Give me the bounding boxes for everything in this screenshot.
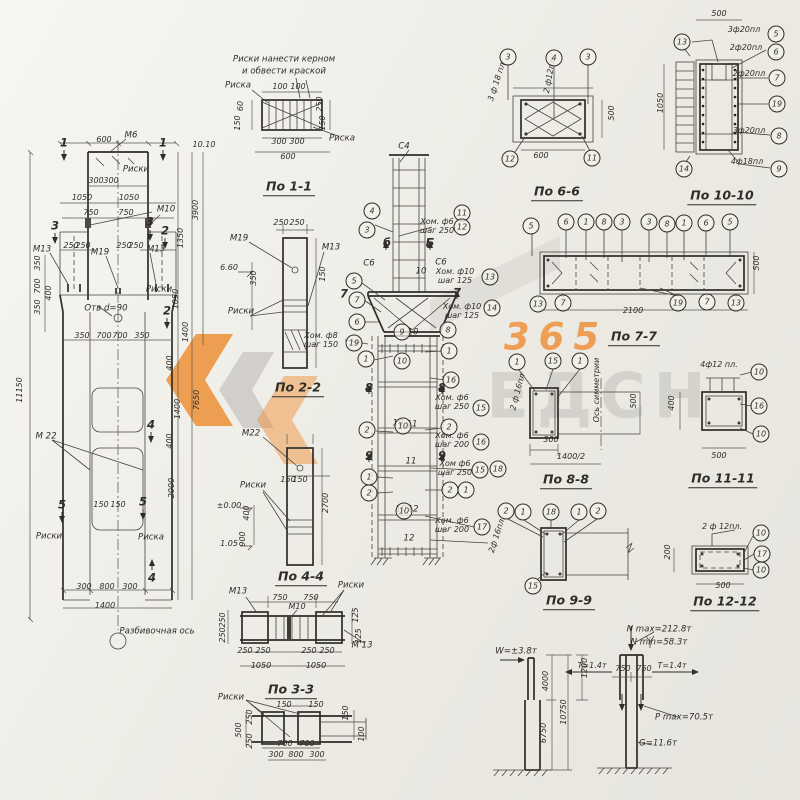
main-elevation-label: 750 bbox=[118, 209, 133, 217]
callout-2: 2 bbox=[590, 503, 607, 520]
callout-8: 8 bbox=[771, 128, 788, 145]
sec-12-12-label: 200 bbox=[664, 544, 672, 559]
sec-3-3-label: 250 bbox=[301, 647, 316, 655]
sec-4-4-label: 150 bbox=[292, 476, 307, 484]
sec-10-10-label: 2ф20пл bbox=[730, 44, 762, 52]
rebar-cage-label: шаг 250 bbox=[438, 469, 472, 477]
rebar-cage-label: шаг 250 bbox=[435, 403, 469, 411]
callout-10: 10 bbox=[751, 364, 768, 381]
sec-12-12-label: 500 bbox=[715, 582, 730, 590]
sec-5-5-label: 100 bbox=[358, 726, 366, 741]
main-elevation-label: 1050 bbox=[72, 194, 92, 202]
sec-2-2-label: 6.60 bbox=[220, 264, 238, 272]
sec-1-1-label: Риски нанести керном bbox=[233, 56, 335, 65]
main-elevation-label: М13 bbox=[147, 246, 165, 255]
sec-5-5-label: 300 bbox=[309, 751, 324, 759]
callout-16: 16 bbox=[443, 372, 460, 389]
sec-4-4-label: 900 bbox=[239, 531, 247, 546]
labels-layer: 600М61110.10Риски30030010501050750750М10… bbox=[0, 0, 800, 800]
main-elevation-label: 700 bbox=[34, 278, 42, 293]
rebar-cage-label: 8 bbox=[365, 382, 373, 394]
main-elevation-label: 1050 bbox=[172, 289, 180, 309]
sec-1-1-label: 250 bbox=[316, 96, 324, 111]
main-elevation-label: 3 bbox=[146, 216, 154, 228]
main-elevation-label: 1350 bbox=[177, 228, 185, 248]
callout-6: 6 bbox=[698, 215, 715, 232]
main-elevation-label: 350 bbox=[74, 332, 89, 340]
load-diagrams-label: W=±3.8т bbox=[495, 648, 537, 657]
sec-2-2-label: 7 bbox=[340, 288, 348, 300]
sec-12-12-title: По 12-12 bbox=[690, 595, 759, 611]
sec-2-2-label: 350 bbox=[250, 270, 258, 285]
main-elevation-label: Риски bbox=[36, 533, 62, 542]
sec-4-4-label: 2700 bbox=[322, 493, 330, 513]
sec-2-2-label: М13 bbox=[322, 244, 340, 253]
callout-4: 4 bbox=[546, 50, 563, 67]
callout-13: 13 bbox=[674, 34, 691, 51]
rebar-cage-label: б bbox=[383, 237, 391, 249]
sec-10-10-label: 4ф18пл bbox=[731, 158, 763, 166]
sec-3-3-label: 125 bbox=[352, 607, 360, 622]
main-elevation-label: М 22 bbox=[35, 433, 56, 442]
callout-6: 6 bbox=[349, 314, 366, 331]
main-elevation-label: 1400 bbox=[95, 602, 115, 610]
load-diagrams-label: P max=70.5т bbox=[655, 714, 713, 723]
main-elevation-label: 11150 bbox=[16, 377, 24, 402]
callout-10: 10 bbox=[396, 503, 413, 520]
callout-6: 6 bbox=[768, 44, 785, 61]
callout-10: 10 bbox=[395, 418, 412, 435]
main-elevation-label: 2000 bbox=[168, 478, 176, 498]
sec-11-11-label: 400 bbox=[668, 395, 676, 410]
sec-5-5-label: 250 bbox=[246, 733, 254, 748]
main-elevation-label: 1400 bbox=[182, 322, 190, 342]
callout-19: 19 bbox=[670, 295, 687, 312]
main-elevation-label: 3900 bbox=[192, 200, 200, 220]
callout-17: 17 bbox=[474, 519, 491, 536]
sec-10-10-title: По 10-10 bbox=[687, 189, 756, 205]
callout-3: 3 bbox=[641, 214, 658, 231]
main-elevation-label: 4 bbox=[148, 572, 156, 584]
callout-7: 7 bbox=[349, 292, 366, 309]
sec-4-4-label: ±0.00 bbox=[217, 502, 242, 510]
sec-10-10-label: 500 bbox=[711, 10, 726, 18]
sec-7-7-title: По 7-7 bbox=[608, 330, 660, 346]
main-elevation-label: 150 bbox=[110, 501, 125, 509]
sec-2-2-label: 250 bbox=[273, 219, 288, 227]
callout-2: 2 bbox=[361, 485, 378, 502]
main-elevation-label: М6 bbox=[125, 132, 138, 141]
sec-1-1-label: 100 bbox=[290, 83, 305, 91]
rebar-cage-label: шаг 125 bbox=[445, 312, 479, 320]
callout-18: 18 bbox=[490, 461, 507, 478]
drawing-sheet: 365 ЕДСН bbox=[0, 0, 800, 800]
callout-4: 4 bbox=[364, 203, 381, 220]
main-elevation-label: 5 bbox=[58, 499, 66, 511]
sec-5-5-label: 800 bbox=[288, 751, 303, 759]
main-elevation-label: М13 bbox=[33, 246, 51, 255]
sec-8-8-title: По 8-8 bbox=[540, 473, 592, 489]
sec-1-1-label: 600 bbox=[280, 153, 295, 161]
main-elevation-label: Риски bbox=[146, 286, 172, 295]
main-elevation-label: 350 bbox=[34, 299, 42, 314]
callout-12: 12 bbox=[454, 219, 471, 236]
sec-11-11-label: 4ф12 пл. bbox=[700, 361, 738, 369]
sec-3-3-title: По 3-3 bbox=[265, 683, 317, 699]
callout-3: 3 bbox=[359, 222, 376, 239]
rebar-cage-label: Хом. ф10 bbox=[436, 268, 475, 276]
sec-2-2-label: Риски bbox=[228, 308, 254, 317]
main-elevation-label: 300 bbox=[122, 583, 137, 591]
callout-1: 1 bbox=[509, 354, 526, 371]
callout-8: 8 bbox=[596, 214, 613, 231]
sec-5-5-label: 500 bbox=[235, 722, 243, 737]
callout-11: 11 bbox=[584, 150, 601, 167]
sec-1-1-label: 150 bbox=[234, 115, 242, 130]
sec-2-2-label: М19 bbox=[230, 235, 248, 244]
callout-15: 15 bbox=[472, 462, 489, 479]
rebar-cage-label: шаг 150 bbox=[304, 341, 338, 349]
main-elevation-label: 700 bbox=[112, 332, 127, 340]
callout-16: 16 bbox=[473, 434, 490, 451]
sec-1-1-title: По 1-1 bbox=[263, 180, 315, 196]
sec-3-3-label: 1050 bbox=[251, 662, 271, 670]
sec-1-1-label: 300 bbox=[289, 138, 304, 146]
sec-9-9-title: По 9-9 bbox=[543, 594, 595, 610]
sec-6-6-label: 3 ф 18 пл bbox=[487, 62, 507, 103]
callout-17: 17 bbox=[754, 546, 771, 563]
sec-3-3-label: 750 bbox=[272, 594, 287, 602]
sec-5-5-label: 300 bbox=[268, 751, 283, 759]
sec-3-3-label: 250 bbox=[237, 647, 252, 655]
callout-5: 5 bbox=[768, 26, 785, 43]
sec-2-2-label: 150 bbox=[319, 266, 327, 281]
sec-2-2-title: По 2-2 bbox=[272, 381, 324, 397]
callout-1: 1 bbox=[515, 504, 532, 521]
sec-3-3-label: 1050 bbox=[306, 662, 326, 670]
rebar-cage-label: шаг 200 bbox=[435, 526, 469, 534]
callout-7: 7 bbox=[555, 295, 572, 312]
sec-10-10-label: 2ф20пл bbox=[733, 70, 765, 78]
rebar-cage-label: шаг 125 bbox=[438, 277, 472, 285]
sec-11-11-label: 500 bbox=[711, 452, 726, 460]
sec-3-3-label: 250 bbox=[219, 627, 227, 642]
main-elevation-label: М19 bbox=[91, 249, 109, 258]
main-elevation-label: 300 bbox=[103, 177, 118, 185]
sec-6-6-label: 600 bbox=[533, 152, 548, 160]
callout-14: 14 bbox=[676, 161, 693, 178]
load-diagrams-label: 750 bbox=[615, 665, 630, 673]
rebar-cage-label: Хом. ф6 bbox=[420, 218, 453, 226]
main-elevation-label: 1400 bbox=[174, 399, 182, 419]
sec-8-8-label: 1400/2 bbox=[557, 453, 585, 461]
callout-1: 1 bbox=[441, 343, 458, 360]
rebar-cage-label: Хом. ф6 bbox=[435, 394, 468, 402]
rebar-cage-label: 2ф 16пл bbox=[488, 518, 506, 554]
main-elevation-label: 1 bbox=[60, 137, 68, 149]
sec-10-10-label: 1050 bbox=[657, 93, 665, 113]
sec-5-5-label: 700 bbox=[299, 740, 314, 748]
sec-6-6-title: По 6-6 bbox=[531, 185, 583, 201]
callout-1: 1 bbox=[572, 353, 589, 370]
callout-7: 7 bbox=[769, 70, 786, 87]
rebar-cage-label: 7 bbox=[453, 287, 461, 299]
sec-8-8-label: 2 ф 16пл bbox=[509, 373, 526, 411]
rebar-cage-label: Хом ф6 bbox=[440, 460, 471, 468]
load-diagrams-label: 4000 bbox=[542, 671, 550, 691]
callout-10: 10 bbox=[753, 562, 770, 579]
load-diagrams-label: 10750 bbox=[560, 699, 568, 724]
callout-8: 8 bbox=[659, 216, 676, 233]
sec-1-1-label: 150 bbox=[319, 115, 327, 130]
rebar-cage-label: С4 bbox=[398, 143, 409, 152]
main-elevation-label: 10.10 bbox=[193, 141, 216, 149]
main-elevation-label: 400 bbox=[166, 433, 174, 448]
load-diagrams-label: N min=58.3т bbox=[631, 639, 688, 648]
sec-4-4-title: По 4-4 bbox=[275, 570, 327, 586]
main-elevation-label: Отв d=90 bbox=[84, 305, 127, 314]
callout-8: 8 bbox=[440, 322, 457, 339]
callout-3: 3 bbox=[500, 49, 517, 66]
sec-8-8-label: 300 bbox=[543, 436, 558, 444]
main-elevation-label: 7650 bbox=[193, 390, 201, 410]
sec-5-5-label: 150 bbox=[276, 701, 291, 709]
callout-1: 1 bbox=[458, 482, 475, 499]
sec-4-4-label: М22 bbox=[242, 430, 260, 439]
rebar-cage-label: Б bbox=[426, 237, 435, 249]
main-elevation-label: 1 bbox=[159, 137, 167, 149]
rebar-cage-label: 12 bbox=[404, 535, 415, 544]
sec-3-3-label: Риски bbox=[338, 582, 364, 591]
load-diagrams-label: 750 bbox=[636, 665, 651, 673]
rebar-cage-label: 9 bbox=[365, 450, 373, 462]
rebar-cage-label: С6 bbox=[435, 259, 446, 268]
sec-10-10-label: 3ф20пл bbox=[728, 26, 760, 34]
sec-3-3-label: М13 bbox=[229, 588, 247, 597]
callout-19: 19 bbox=[346, 335, 363, 352]
sec-5-5-label: 150 bbox=[308, 701, 323, 709]
callout-1: 1 bbox=[361, 469, 378, 486]
rebar-cage-label: Хом. ф8 bbox=[304, 332, 337, 340]
sec-8-8-label: Ось симметрии bbox=[593, 358, 601, 423]
sec-4-4-label: Риски bbox=[240, 482, 266, 491]
callout-1: 1 bbox=[571, 504, 588, 521]
sec-4-4-label: 400 bbox=[243, 505, 251, 520]
main-elevation-label: 300 bbox=[76, 583, 91, 591]
rebar-cage-label: 10 bbox=[416, 268, 427, 277]
rebar-cage-label: Хом. ф6 bbox=[435, 517, 468, 525]
callout-5: 5 bbox=[722, 214, 739, 231]
sec-1-1-label: 100 bbox=[272, 83, 287, 91]
sec-12-12-label: 2 ф 12пл. bbox=[702, 523, 742, 531]
main-elevation-label: 400 bbox=[166, 355, 174, 370]
callout-10: 10 bbox=[753, 525, 770, 542]
sec-10-10-label: 3ф20пл bbox=[733, 127, 765, 135]
callout-2: 2 bbox=[441, 419, 458, 436]
load-diagrams-label: 6750 bbox=[540, 723, 548, 743]
main-elevation-label: Риски bbox=[123, 166, 149, 175]
main-elevation-label: 2 bbox=[163, 305, 171, 317]
sec-5-5-label: Риски bbox=[218, 694, 244, 703]
callout-16: 16 bbox=[751, 398, 768, 415]
main-elevation-label: 3 bbox=[51, 220, 59, 232]
load-diagrams-label: G=11.6т bbox=[639, 740, 677, 749]
main-elevation-label: М10 bbox=[157, 206, 175, 215]
sec-11-11-title: По 11-11 bbox=[688, 472, 757, 488]
main-elevation-label: 300 bbox=[88, 177, 103, 185]
callout-10: 10 bbox=[394, 353, 411, 370]
callout-6: 6 bbox=[558, 214, 575, 231]
load-diagrams-label: N max=212.8т bbox=[627, 626, 692, 635]
callout-1: 1 bbox=[358, 351, 375, 368]
sec-6-6-label: 500 bbox=[608, 105, 616, 120]
callout-13: 13 bbox=[530, 296, 547, 313]
sec-1-1-label: 300 bbox=[271, 138, 286, 146]
callout-1: 1 bbox=[676, 215, 693, 232]
callout-3: 3 bbox=[614, 214, 631, 231]
callout-14: 14 bbox=[484, 300, 501, 317]
sec-7-7-label: 500 bbox=[753, 255, 761, 270]
rebar-cage-label: 11 bbox=[406, 458, 417, 467]
callout-12: 12 bbox=[502, 151, 519, 168]
main-elevation-label: 350 bbox=[34, 255, 42, 270]
main-elevation-label: 350 bbox=[134, 332, 149, 340]
main-elevation-label: 700 bbox=[96, 332, 111, 340]
sec-3-3-label: 750 bbox=[303, 594, 318, 602]
sec-1-1-label: Риска bbox=[225, 82, 251, 91]
callout-1: 1 bbox=[578, 214, 595, 231]
callout-9: 9 bbox=[771, 161, 788, 178]
rebar-cage-label: С6 bbox=[363, 260, 374, 269]
main-elevation-label: Разбивочная ось bbox=[119, 628, 194, 637]
callout-7: 7 bbox=[699, 294, 716, 311]
callout-5: 5 bbox=[346, 273, 363, 290]
callout-10: 10 bbox=[753, 426, 770, 443]
main-elevation-label: 150 bbox=[93, 501, 108, 509]
callout-5: 5 bbox=[523, 218, 540, 235]
rebar-cage-label: шаг 250 bbox=[420, 227, 454, 235]
main-elevation-label: 250 bbox=[128, 242, 143, 250]
sec-2-2-label: 250 bbox=[289, 219, 304, 227]
sec-5-5-label: 700 bbox=[277, 740, 292, 748]
main-elevation-label: 400 bbox=[45, 285, 53, 300]
main-elevation-label: Риска bbox=[138, 534, 164, 543]
callout-19: 19 bbox=[769, 96, 786, 113]
sec-8-8-label: 500 bbox=[630, 393, 638, 408]
load-diagrams-label: Т=1.4т bbox=[578, 662, 607, 670]
main-elevation-label: 1050 bbox=[119, 194, 139, 202]
sec-5-5-label: 150 bbox=[342, 705, 350, 720]
sec-3-3-label: 250 bbox=[219, 612, 227, 627]
callout-13: 13 bbox=[728, 295, 745, 312]
callout-3: 3 bbox=[580, 49, 597, 66]
main-elevation-label: 800 bbox=[99, 583, 114, 591]
sec-4-4-label: 1.05 bbox=[220, 540, 238, 548]
callout-15: 15 bbox=[473, 400, 490, 417]
callout-15: 15 bbox=[525, 578, 542, 595]
sec-3-3-label: 250 bbox=[319, 647, 334, 655]
main-elevation-label: 600 bbox=[96, 136, 111, 144]
sec-1-1-label: и обвести краской bbox=[242, 68, 326, 77]
rebar-cage-label: Хом. ф10 bbox=[443, 303, 482, 311]
sec-3-3-label: М10 bbox=[288, 603, 305, 611]
callout-9: 9 bbox=[394, 324, 411, 341]
main-elevation-label: 2 bbox=[161, 225, 169, 237]
callout-15: 15 bbox=[545, 353, 562, 370]
sec-3-3-label: 250 bbox=[255, 647, 270, 655]
sec-1-1-label: 60 bbox=[237, 101, 245, 111]
callout-2: 2 bbox=[359, 422, 376, 439]
main-elevation-label: 4 bbox=[147, 419, 155, 431]
main-elevation-label: 750 bbox=[83, 209, 98, 217]
sec-3-3-label: М 13 bbox=[351, 642, 372, 651]
sec-1-1-label: Риска bbox=[329, 135, 355, 144]
callout-13: 13 bbox=[482, 269, 499, 286]
sec-7-7-label: 2100 bbox=[623, 307, 643, 315]
callout-2: 2 bbox=[442, 482, 459, 499]
main-elevation-label: 5 bbox=[139, 496, 147, 508]
load-diagrams-label: Т=1.4т bbox=[658, 662, 687, 670]
callout-2: 2 bbox=[498, 503, 515, 520]
callout-18: 18 bbox=[543, 504, 560, 521]
sec-5-5-label: 250 bbox=[246, 709, 254, 724]
main-elevation-label: 250 bbox=[75, 242, 90, 250]
